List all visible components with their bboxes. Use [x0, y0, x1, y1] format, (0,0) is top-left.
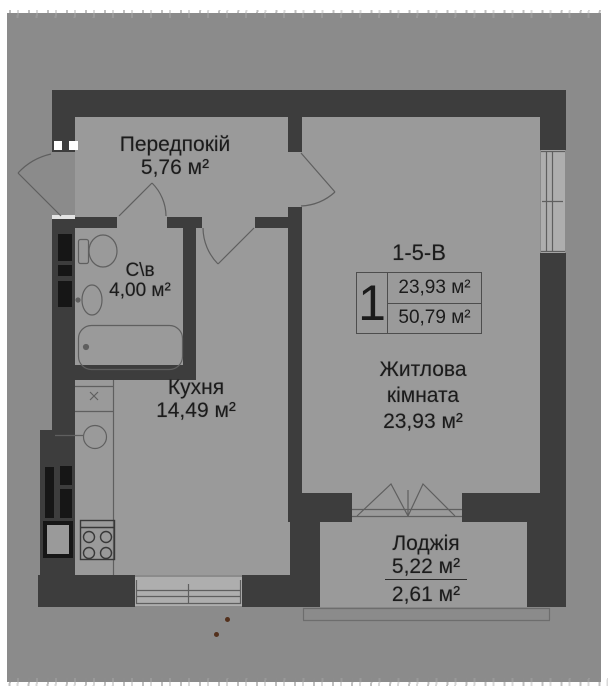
loggia-pillar-left: [290, 522, 320, 607]
living-room-name-line1: Житлова: [323, 357, 523, 383]
bathroom-area: 4,00 м²: [80, 281, 200, 301]
paper-edge-right: [601, 0, 608, 700]
wall-living-bottom-left: [288, 493, 352, 522]
living-room-name-line2: кімната: [323, 383, 523, 409]
wall-divider-upper: [288, 117, 302, 152]
kitchen-label: Кухня 14,49 м²: [116, 376, 276, 422]
artifact-dot-2: [214, 632, 219, 637]
wall-top: [52, 90, 566, 117]
wall-bottom-left: [38, 575, 135, 607]
kitchen-shaft-3: [60, 489, 72, 518]
bathroom-shaft-1: [58, 234, 72, 261]
loggia-area-total: 5,22 м²: [385, 555, 467, 580]
wall-divider-lower: [288, 207, 302, 522]
bathroom-label: С\в 4,00 м²: [80, 261, 200, 301]
bathroom-shaft-3: [58, 281, 72, 307]
loggia-label: Лоджія 5,22 м² 2,61 м²: [346, 532, 506, 606]
paper-tear-bottom: [0, 678, 608, 686]
wall-right-middle: [540, 253, 566, 493]
loggia-area-half: 2,61 м²: [346, 580, 506, 606]
summary-rooms-count: 1: [357, 273, 388, 333]
hallway-area: 5,76 м²: [75, 156, 275, 179]
bathroom-name: С\в: [80, 261, 200, 281]
summary-living-area: 23,93 м²: [388, 273, 481, 304]
living-room-window: [541, 150, 565, 253]
kitchen-shaft-1: [45, 467, 54, 518]
loggia-railing: [303, 608, 550, 621]
bathroom-shaft-2: [58, 265, 72, 276]
apartment-code: 1-5-В: [356, 241, 482, 265]
kitchen-shaft-box: [43, 521, 73, 558]
kitchen-shaft-2: [60, 466, 72, 485]
entrance-frame-mark-3: [52, 215, 75, 219]
living-room-area: 23,93 м²: [323, 409, 523, 435]
paper-tear-top: [0, 10, 608, 18]
kitchen-area: 14,49 м²: [116, 399, 276, 422]
loggia-pillar-right: [527, 522, 566, 607]
wall-living-bottom-right: [462, 493, 566, 522]
summary-total-area: 50,79 м²: [388, 304, 481, 334]
floor-plan-page: Передпокій 5,76 м² С\в 4,00 м² Кухня 14,…: [0, 0, 608, 700]
wall-hall-bottom-a: [75, 217, 117, 228]
kitchen-name: Кухня: [116, 376, 276, 399]
entrance-frame-mark-1: [54, 141, 62, 150]
apartment-summary-table: 1 23,93 м² 50,79 м²: [356, 272, 482, 334]
entrance-door-arc: [18, 154, 61, 216]
loggia-name: Лоджія: [346, 532, 506, 555]
artifact-dot-1: [225, 617, 230, 622]
living-room-label: Житлова кімната 23,93 м²: [323, 357, 523, 435]
kitchen-window: [135, 577, 242, 606]
wall-right-upper: [540, 90, 566, 150]
paper-edge-left: [0, 0, 7, 700]
balcony-door-floor: [352, 493, 462, 522]
hallway-label: Передпокій 5,76 м²: [75, 133, 275, 179]
hallway-name: Передпокій: [75, 133, 275, 156]
